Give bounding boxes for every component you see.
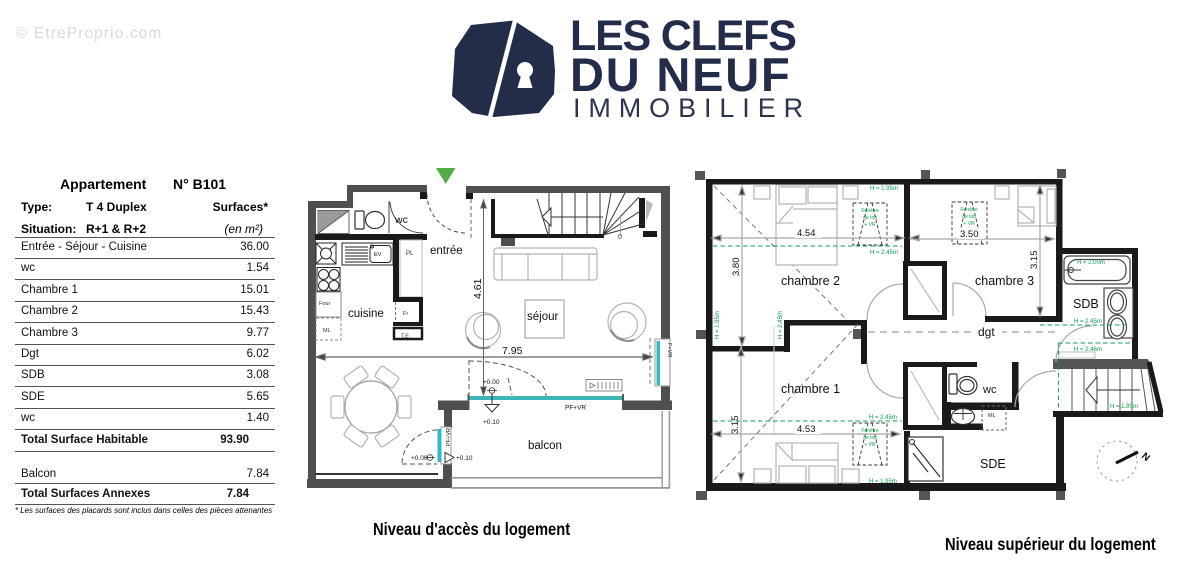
svg-text:+ VR: + VR xyxy=(963,221,975,227)
svg-text:ML: ML xyxy=(988,413,996,419)
svg-text:H = 2.45m: H = 2.45m xyxy=(869,415,897,421)
svg-text:chambre 3: chambre 3 xyxy=(975,274,1034,288)
svg-text:chambre 1: chambre 1 xyxy=(781,382,840,396)
svg-text:ML: ML xyxy=(323,328,331,334)
svg-text:balcon: balcon xyxy=(528,440,562,452)
svg-text:PL: PL xyxy=(406,251,414,257)
svg-text:H = 1.95m: H = 1.95m xyxy=(715,311,721,339)
svg-text:entrée: entrée xyxy=(430,245,463,257)
svg-text:de toit: de toit xyxy=(863,215,877,221)
svg-text:SDB: SDB xyxy=(1073,297,1099,311)
svg-text:PF+VR: PF+VR xyxy=(565,405,586,412)
svg-text:T.E: T.E xyxy=(401,334,409,340)
svg-text:Fenêtre: Fenêtre xyxy=(861,208,878,214)
svg-text:3.15: 3.15 xyxy=(730,416,741,435)
svg-text:H = 1.95m: H = 1.95m xyxy=(869,479,897,485)
svg-text:H = 2.45m: H = 2.45m xyxy=(870,250,898,256)
svg-text:EV: EV xyxy=(374,252,382,258)
svg-text:3.50: 3.50 xyxy=(960,229,979,240)
svg-text:H = 2.00m: H = 2.00m xyxy=(1077,260,1105,266)
svg-text:+ VR: + VR xyxy=(864,442,876,448)
svg-text:de toit: de toit xyxy=(962,214,976,220)
svg-text:H = 2.46m: H = 2.46m xyxy=(1074,347,1102,353)
svg-text:dgt: dgt xyxy=(978,325,995,339)
svg-text:H = 2.45m: H = 2.45m xyxy=(1074,319,1102,325)
svg-text:3.80: 3.80 xyxy=(731,258,742,277)
svg-text:chambre 2: chambre 2 xyxy=(781,274,840,288)
svg-text:4.54: 4.54 xyxy=(797,228,816,239)
svg-text:wc: wc xyxy=(394,214,408,226)
svg-text:Fenêtre: Fenêtre xyxy=(960,207,977,213)
svg-text:Fenêtre: Fenêtre xyxy=(861,428,878,434)
svg-text:Fr: Fr xyxy=(403,311,408,317)
svg-text:4.61: 4.61 xyxy=(472,278,484,299)
svg-text:de toit: de toit xyxy=(863,435,877,441)
svg-text:séjour: séjour xyxy=(527,311,558,323)
svg-text:PF+VR: PF+VR xyxy=(446,428,452,446)
svg-text:+0.10: +0.10 xyxy=(456,455,473,462)
svg-text:Four: Four xyxy=(319,301,330,307)
svg-text:3.15: 3.15 xyxy=(1029,251,1040,270)
svg-text:cuisine: cuisine xyxy=(348,308,384,320)
svg-text:IMMOBILIER: IMMOBILIER xyxy=(573,93,811,123)
svg-text:SDE: SDE xyxy=(980,457,1006,471)
svg-text:wc: wc xyxy=(982,384,997,396)
svg-text:+0.00: +0.00 xyxy=(483,379,500,386)
svg-text:+0.10: +0.10 xyxy=(483,419,500,426)
svg-text:4.53: 4.53 xyxy=(797,424,816,435)
svg-text:N: N xyxy=(1139,451,1152,464)
svg-text:H = 2.45m: H = 2.45m xyxy=(778,311,784,339)
svg-text:F+VR: F+VR xyxy=(666,343,672,357)
svg-text:H = 1.80m: H = 1.80m xyxy=(1110,404,1138,410)
svg-text:+ VR: + VR xyxy=(864,222,876,228)
svg-text:+0.00: +0.00 xyxy=(411,455,428,462)
svg-text:7.95: 7.95 xyxy=(502,345,523,357)
svg-text:H = 1.95m: H = 1.95m xyxy=(870,186,898,192)
